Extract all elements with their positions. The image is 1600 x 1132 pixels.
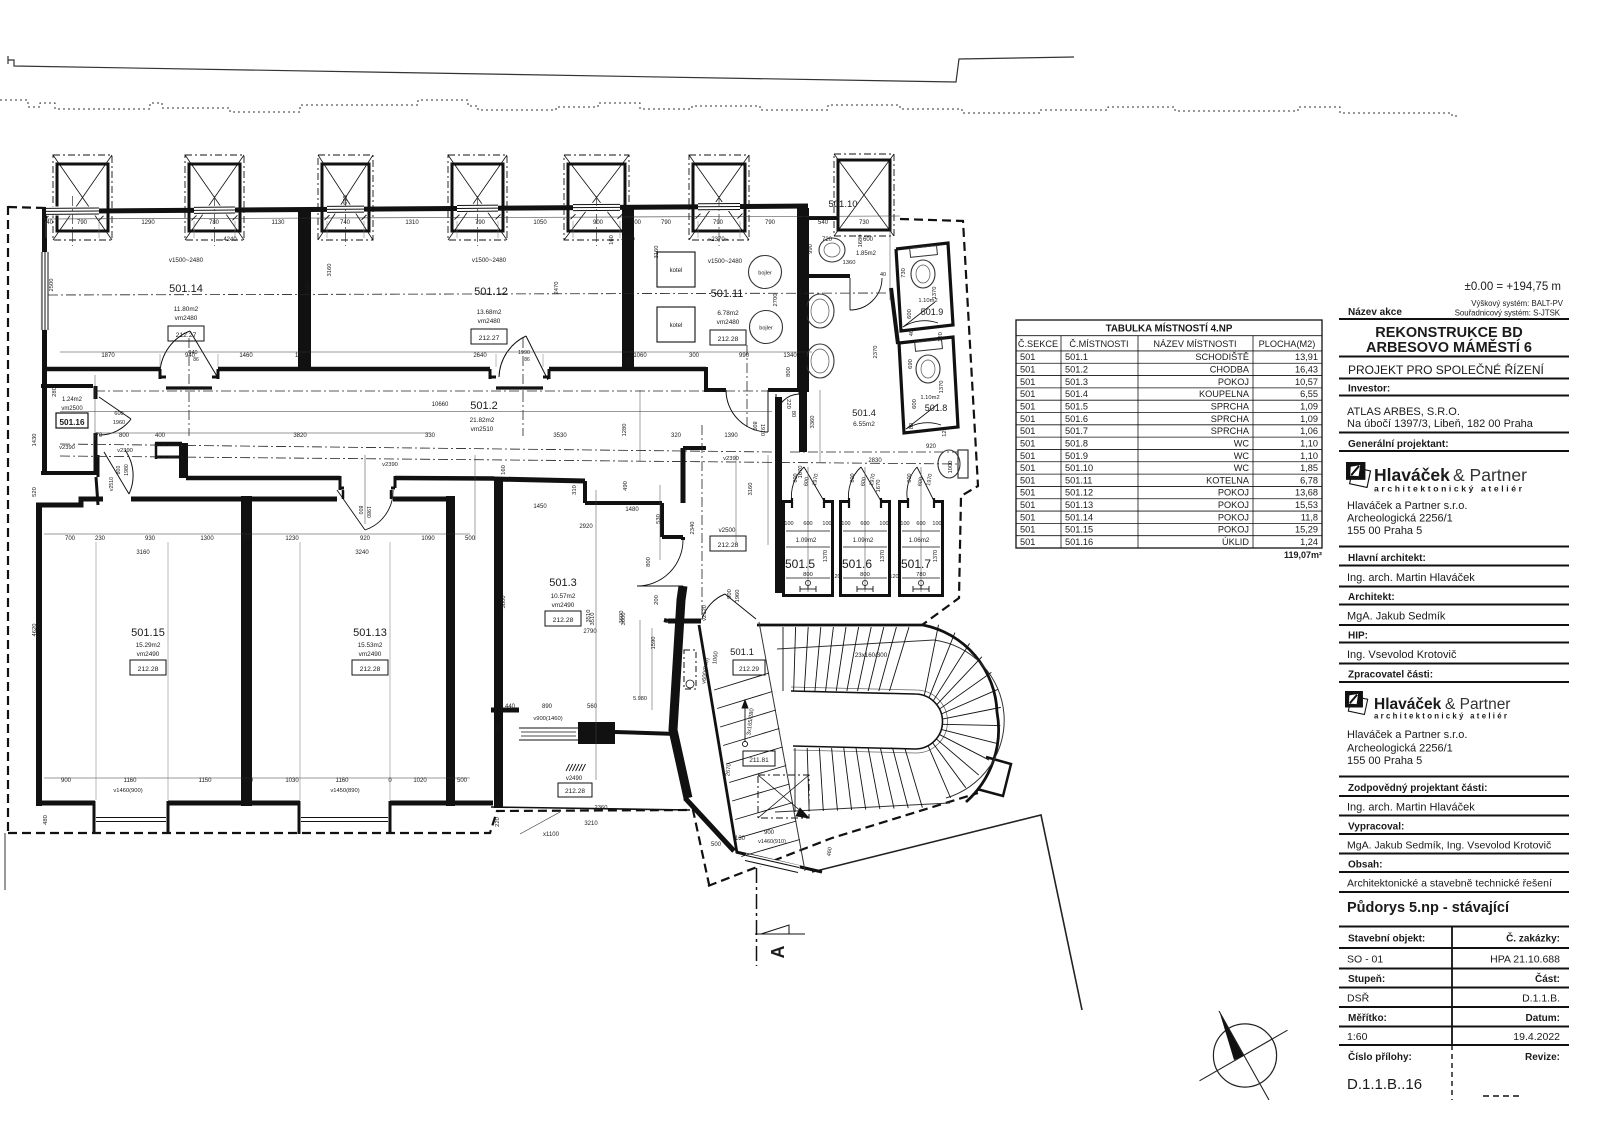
svg-text:Zodpovědný projektant části:: Zodpovědný projektant části: [1348,783,1487,794]
svg-text:ARBESOVO MÁMĚSTÍ 6: ARBESOVO MÁMĚSTÍ 6 [1366,338,1532,356]
svg-text:1670: 1670 [876,480,882,493]
svg-text:KOUPELNA: KOUPELNA [1199,389,1250,399]
svg-text:501.9: 501.9 [1065,451,1088,461]
svg-text:1280: 1280 [622,424,628,437]
svg-text:23x160/300: 23x160/300 [855,652,888,659]
svg-text:200: 200 [654,595,660,605]
svg-text:900: 900 [61,778,72,784]
svg-text:1000: 1000 [948,461,954,474]
svg-text:212.28: 212.28 [565,788,585,795]
svg-text:2360: 2360 [595,805,608,811]
svg-text:NÁZEV MÍSTNOSTI: NÁZEV MÍSTNOSTI [1153,339,1236,349]
svg-text:501.13: 501.13 [353,627,387,639]
svg-text:501.10: 501.10 [828,199,857,210]
svg-text:Vypracoval:: Vypracoval: [1348,822,1404,833]
svg-text:120: 120 [889,574,898,580]
svg-text:800: 800 [907,473,913,482]
svg-text:155 00 Praha 5: 155 00 Praha 5 [1347,755,1422,767]
svg-text:WC: WC [1234,451,1250,461]
svg-text:100: 100 [784,521,793,527]
svg-text:11,8: 11,8 [1301,512,1318,522]
svg-text:501.4: 501.4 [1065,389,1088,399]
svg-text:1020: 1020 [413,778,427,784]
svg-text:1960: 1960 [735,590,741,603]
svg-text:v2490: v2490 [566,776,583,782]
svg-text:kotel: kotel [670,268,683,274]
svg-text:2700: 2700 [773,294,779,307]
svg-text:780: 780 [495,724,501,734]
svg-text:600: 600 [860,521,869,527]
svg-text:Hlaváček a Partner s.r.o.: Hlaváček a Partner s.r.o. [1347,500,1467,512]
svg-text:40: 40 [909,330,915,336]
svg-text:501: 501 [1020,463,1035,473]
svg-text:1290: 1290 [141,220,155,226]
svg-text:Č.SEKCE: Č.SEKCE [1018,339,1058,349]
svg-text:500: 500 [457,778,468,784]
svg-text:501: 501 [1020,488,1035,498]
svg-text:501.10: 501.10 [1065,463,1093,473]
svg-text:v1460(910): v1460(910) [758,839,786,845]
svg-text:1370: 1370 [933,550,939,562]
svg-text:212.28: 212.28 [360,666,381,673]
svg-text:v2500: v2500 [719,527,736,534]
svg-text:& Partner: & Partner [1453,465,1527,485]
svg-text:architektonický ateliér: architektonický ateliér [1374,712,1509,721]
svg-text:80: 80 [909,423,915,429]
svg-text:120: 120 [942,427,948,437]
svg-text:1370: 1370 [880,550,886,562]
svg-text:1230: 1230 [285,536,299,542]
svg-text:2500: 2500 [49,279,55,292]
svg-text:3160: 3160 [748,483,754,496]
svg-text:100: 100 [932,521,941,527]
svg-text:11.80m2: 11.80m2 [174,306,199,313]
svg-text:1910: 1910 [759,424,765,436]
svg-text:940: 940 [185,353,196,359]
svg-text:3600: 3600 [619,611,625,624]
svg-text:Archeologická 2256/1: Archeologická 2256/1 [1347,743,1453,755]
svg-text:1980: 1980 [365,506,371,518]
svg-text:6.78m2: 6.78m2 [717,310,739,317]
svg-text:1,09: 1,09 [1300,401,1318,411]
svg-text:vm2480: vm2480 [175,315,198,322]
svg-text:v900(1460): v900(1460) [533,716,562,722]
svg-text:1370: 1370 [939,381,945,394]
svg-text:501: 501 [1020,525,1035,535]
svg-text:vm2500: vm2500 [61,406,83,412]
svg-text:vm2490: vm2490 [359,651,382,658]
svg-text:890: 890 [542,704,553,710]
svg-text:vm2510: vm2510 [471,426,494,433]
svg-text:4620: 4620 [32,624,38,637]
svg-text:WC: WC [1234,438,1250,448]
svg-text:DSŘ: DSŘ [1347,992,1370,1005]
svg-text:6,78: 6,78 [1300,475,1318,485]
svg-text:Výškový systém: BALT-PV: Výškový systém: BALT-PV [1471,299,1564,308]
svg-text:REKONSTRUKCE BD: REKONSTRUKCE BD [1375,325,1522,341]
svg-text:501: 501 [1020,500,1035,510]
svg-text:220: 220 [626,355,632,365]
svg-text:15,29: 15,29 [1295,525,1318,535]
svg-text:1,85: 1,85 [1300,463,1318,473]
svg-text:501: 501 [1020,512,1035,522]
svg-text:v2120: v2120 [702,605,708,621]
svg-text:1340: 1340 [783,353,797,359]
svg-text:3510: 3510 [586,610,592,623]
svg-text:13.68m2: 13.68m2 [477,309,502,316]
svg-text:1390: 1390 [724,433,738,439]
svg-text:800: 800 [803,572,813,578]
svg-text:1430: 1430 [32,434,38,447]
svg-text:600: 600 [912,399,918,409]
svg-text:86: 86 [524,357,530,363]
svg-text:PROJEKT PRO SPOLEČNÉ ŘÍZENÍ: PROJEKT PRO SPOLEČNÉ ŘÍZENÍ [1348,362,1544,377]
svg-text:v2390: v2390 [723,456,739,462]
svg-text:bojler: bojler [759,326,773,332]
svg-text:501.13: 501.13 [1065,500,1093,510]
svg-text:Č.MÍSTNOSTI: Č.MÍSTNOSTI [1069,339,1128,349]
svg-text:Název akce: Název akce [1348,307,1402,318]
svg-text:501.2: 501.2 [1065,365,1088,375]
svg-text:700: 700 [65,536,76,542]
svg-text:1,09: 1,09 [1300,414,1318,424]
svg-text:360: 360 [495,797,501,807]
svg-text:600: 600 [907,309,913,319]
svg-text:4780: 4780 [621,237,635,243]
svg-text:15,53: 15,53 [1295,500,1318,510]
svg-text:SPRCHA: SPRCHA [1211,401,1250,411]
svg-text:Architektonické a stavebně tec: Architektonické a stavebně technické řeš… [1347,878,1552,890]
svg-text:SPRCHA: SPRCHA [1211,426,1250,436]
svg-text:501.1: 501.1 [1065,352,1088,362]
svg-text:1060: 1060 [633,353,647,359]
svg-text:KOTELNA: KOTELNA [1206,475,1250,485]
svg-text:130: 130 [735,836,746,842]
svg-text:WC: WC [1234,463,1250,473]
svg-text:501.12: 501.12 [474,286,508,298]
svg-text:19.4.2022: 19.4.2022 [1513,1031,1560,1043]
svg-text:3360: 3360 [810,416,816,429]
svg-text:POKOJ: POKOJ [1218,488,1249,498]
svg-text:800: 800 [850,473,856,482]
svg-text:1:60: 1:60 [1347,1031,1368,1043]
svg-text:10,57: 10,57 [1295,377,1318,387]
svg-text:501: 501 [1020,438,1035,448]
svg-text:1,10: 1,10 [1300,438,1318,448]
svg-text:bojler: bojler [758,271,772,277]
svg-text:POKOJ: POKOJ [1218,525,1249,535]
svg-text:HIP:: HIP: [1348,631,1368,642]
svg-text:212.27: 212.27 [176,332,197,339]
svg-text:501.7: 501.7 [1065,426,1088,436]
svg-text:155 00 Praha 5: 155 00 Praha 5 [1347,525,1422,537]
svg-text:& Partner: & Partner [1445,696,1510,713]
svg-text:120: 120 [831,574,840,580]
svg-text:1680: 1680 [858,235,864,248]
svg-text:v2390: v2390 [382,462,398,468]
svg-text:1.24m2: 1.24m2 [62,397,83,403]
svg-text:2490: 2490 [305,282,311,295]
svg-text:280: 280 [52,387,58,397]
svg-text:212.29: 212.29 [739,666,759,673]
svg-text:1480: 1480 [625,507,639,513]
svg-text:501.2: 501.2 [470,400,498,412]
svg-text:1130: 1130 [272,220,286,226]
svg-text:1160: 1160 [336,778,350,784]
svg-text:501.14: 501.14 [1065,512,1093,522]
svg-text:119,07m²: 119,07m² [1284,550,1322,560]
svg-text:1300: 1300 [200,536,214,542]
svg-text:1870: 1870 [101,353,115,359]
svg-text:501.8: 501.8 [925,403,948,413]
svg-text:1980: 1980 [124,464,130,476]
svg-text:1370: 1370 [823,550,829,562]
svg-text:D.1.1.B..16: D.1.1.B..16 [1347,1076,1422,1093]
svg-text:800: 800 [860,572,870,578]
svg-text:10.57m2: 10.57m2 [551,593,576,600]
svg-text:690: 690 [343,195,349,205]
svg-text:501: 501 [1020,389,1035,399]
svg-text:800: 800 [751,421,757,430]
svg-text:501: 501 [1020,377,1035,387]
svg-text:1090: 1090 [421,536,435,542]
svg-text:730: 730 [901,268,907,278]
svg-text:v2390: v2390 [59,445,75,451]
svg-text:790: 790 [765,220,776,226]
svg-text:900: 900 [727,589,733,599]
svg-text:Architekt:: Architekt: [1348,592,1395,603]
svg-text:3820: 3820 [293,433,307,439]
svg-text:v1450(890): v1450(890) [330,788,359,794]
svg-text:501.1: 501.1 [730,647,754,658]
svg-text:SPRCHA: SPRCHA [1211,414,1250,424]
svg-text:440: 440 [505,704,516,710]
svg-text:600: 600 [803,521,812,527]
svg-text:501.15: 501.15 [1065,525,1093,535]
svg-text:D.1.1.B.: D.1.1.B. [1522,993,1560,1005]
svg-text:501.16: 501.16 [1065,537,1093,547]
svg-text:SCHODIŠTĚ: SCHODIŠTĚ [1195,352,1249,362]
svg-text:501.7: 501.7 [901,557,931,571]
svg-text:~2370~: ~2370~ [708,237,729,243]
svg-text:900: 900 [593,220,604,226]
svg-text:240: 240 [43,220,54,226]
svg-text:600: 600 [114,411,123,417]
svg-text:520: 520 [32,487,38,497]
svg-text:330: 330 [425,433,436,439]
svg-text:800: 800 [646,557,652,567]
svg-text:501.14: 501.14 [169,283,203,295]
svg-text:Investor:: Investor: [1348,384,1390,395]
svg-text:920: 920 [926,444,937,450]
svg-text:1160: 1160 [124,778,138,784]
svg-text:790: 790 [713,220,724,226]
svg-text:990: 990 [739,353,750,359]
svg-text:v1500~2480: v1500~2480 [472,257,507,264]
svg-text:100: 100 [841,521,850,527]
svg-text:Stavební objekt:: Stavební objekt: [1348,934,1425,945]
svg-text:13,68: 13,68 [1295,488,1318,498]
svg-text:280: 280 [241,536,252,542]
svg-text:501: 501 [1020,537,1035,547]
svg-text:600: 600 [863,237,874,243]
svg-text:690: 690 [908,359,914,369]
svg-text:Stupeň:: Stupeň: [1348,974,1385,985]
svg-text:501: 501 [1020,426,1035,436]
svg-text:920: 920 [360,536,371,542]
svg-text:100: 100 [900,521,909,527]
svg-text:501: 501 [1020,365,1035,375]
svg-text:Na úbočí 1397/3, Libeň, 182 00: Na úbočí 1397/3, Libeň, 182 00 Praha [1347,418,1534,430]
svg-text:POKOJ: POKOJ [1218,377,1249,387]
svg-text:480: 480 [43,815,49,825]
svg-text:501.3: 501.3 [549,577,577,589]
svg-text:Zpracovatel části:: Zpracovatel části: [1348,670,1433,681]
svg-text:1310: 1310 [405,220,419,226]
svg-text:212.28: 212.28 [138,666,159,673]
svg-text:220: 220 [785,399,791,409]
svg-text:180: 180 [295,353,306,359]
svg-text:3160: 3160 [136,550,150,556]
svg-text:Půdorys 5.np - stávající: Půdorys 5.np - stávající [1347,900,1510,916]
svg-text:501: 501 [1020,352,1035,362]
svg-text:212.28: 212.28 [718,336,739,343]
svg-text:212.27: 212.27 [479,335,500,342]
svg-text:PLOCHA(M2): PLOCHA(M2) [1259,339,1316,349]
svg-text:SO - 01: SO - 01 [1347,954,1383,966]
svg-text:1960: 1960 [113,420,125,426]
svg-text:Číslo přílohy:: Číslo přílohy: [1348,1050,1412,1063]
svg-text:Ing. Vsevolod Krotovič: Ing. Vsevolod Krotovič [1347,649,1457,661]
svg-text:Měřítko:: Měřítko: [1348,1013,1387,1024]
svg-text:v2390: v2390 [117,448,133,454]
svg-text:501.16: 501.16 [59,418,84,427]
svg-text:vm2480: vm2480 [717,319,740,326]
svg-text:Hlaváček: Hlaváček [1374,696,1442,713]
svg-text:320: 320 [671,433,682,439]
svg-text:10660: 10660 [432,402,449,408]
svg-text:530: 530 [656,514,662,524]
svg-text:13,91: 13,91 [1295,352,1318,362]
svg-text:1990: 1990 [518,350,530,356]
svg-text:architektonický ateliér: architektonický ateliér [1374,484,1525,494]
svg-text:v1460(900): v1460(900) [113,788,142,794]
svg-text:2790: 2790 [583,629,597,635]
svg-text:Hlaváček: Hlaváček [1374,465,1450,485]
svg-text:160: 160 [609,235,615,245]
svg-text:1,24: 1,24 [1300,537,1318,547]
svg-text:501.15: 501.15 [131,627,165,639]
svg-text:501.6: 501.6 [842,557,872,571]
svg-text:6.55m2: 6.55m2 [853,421,875,428]
svg-text:230: 230 [95,536,106,542]
svg-text:212.28: 212.28 [553,617,574,624]
svg-text:490: 490 [623,481,629,491]
svg-text:CHODBA: CHODBA [1210,365,1250,375]
svg-text:MgA. Jakub Sedmík, Ing. Vsevol: MgA. Jakub Sedmík, Ing. Vsevolod Krotovi… [1347,840,1551,852]
svg-text:730: 730 [859,220,870,226]
svg-text:v1500~2480: v1500~2480 [169,257,204,264]
svg-text:Obsah:: Obsah: [1348,860,1382,871]
svg-text:3160: 3160 [654,246,660,259]
svg-text:1,06: 1,06 [1300,426,1318,436]
svg-text:1,10: 1,10 [1300,451,1318,461]
svg-text:1.85m2: 1.85m2 [856,251,877,257]
svg-text:Archeologická 2256/1: Archeologická 2256/1 [1347,513,1453,525]
svg-text:80: 80 [790,411,796,417]
svg-text:2340: 2340 [690,522,696,535]
svg-text:501: 501 [1020,401,1035,411]
svg-text:15.53m2: 15.53m2 [358,642,383,649]
svg-text:Část:: Část: [1535,972,1560,985]
svg-text:790: 790 [77,220,88,226]
svg-text:Hlaváček a Partner s.r.o.: Hlaváček a Partner s.r.o. [1347,729,1467,741]
svg-text:3160: 3160 [327,264,333,277]
svg-text:100: 100 [822,521,831,527]
svg-text:ATLAS ARBES, S.R.O.: ATLAS ARBES, S.R.O. [1347,406,1460,418]
svg-text:500: 500 [465,536,476,542]
svg-text:Ing. arch. Martin Hlaváček: Ing. arch. Martin Hlaváček [1347,802,1475,814]
svg-text:POKOJ: POKOJ [1218,512,1249,522]
svg-text:501.6: 501.6 [1065,414,1088,424]
svg-text:6,55: 6,55 [1300,389,1318,399]
svg-text:501.4: 501.4 [852,408,876,419]
svg-text:3210: 3210 [584,821,598,827]
svg-text:Souřadnicový systém: S-JTSK: Souřadnicový systém: S-JTSK [1455,309,1561,318]
svg-text:501.12: 501.12 [1065,488,1093,498]
svg-text:40: 40 [880,272,886,278]
svg-text:270: 270 [243,778,254,784]
svg-text:160: 160 [501,465,507,475]
svg-text:2830: 2830 [868,458,882,464]
svg-text:800: 800 [116,466,122,475]
svg-text:1450: 1450 [533,504,547,510]
svg-text:990: 990 [808,244,814,254]
svg-text:100: 100 [879,521,888,527]
svg-text:800: 800 [786,367,792,377]
svg-text:MgA. Jakub Sedmík: MgA. Jakub Sedmík [1347,611,1446,623]
svg-text:120: 120 [938,332,944,342]
svg-text:501.11: 501.11 [711,288,744,300]
svg-text:Revize:: Revize: [1525,1052,1560,1063]
svg-text:2640: 2640 [473,353,487,359]
svg-text:2470: 2470 [554,282,560,295]
svg-text:1460: 1460 [239,353,253,359]
svg-text:212.28: 212.28 [718,542,739,549]
svg-text:v1500~2480: v1500~2480 [708,258,743,265]
svg-text:930: 930 [145,536,156,542]
svg-text:15.29m2: 15.29m2 [136,642,161,649]
svg-text:3800: 3800 [501,596,507,609]
svg-text:A: A [768,946,788,959]
svg-text:501.11: 501.11 [1065,475,1092,485]
svg-text:Hlavní architekt:: Hlavní architekt: [1348,553,1426,564]
svg-text:310: 310 [572,485,578,495]
svg-text:1670: 1670 [798,466,804,479]
svg-text:720: 720 [822,237,833,243]
svg-text:vm2490: vm2490 [552,602,575,609]
svg-text:300: 300 [689,353,700,359]
svg-text:400: 400 [155,433,166,439]
svg-text:600: 600 [916,521,925,527]
svg-text:501: 501 [1020,414,1035,424]
svg-text:800: 800 [357,506,363,515]
svg-text:HPA 21.10.688: HPA 21.10.688 [1490,954,1560,966]
svg-text:501.5: 501.5 [1065,401,1088,411]
svg-text:800: 800 [119,433,130,439]
svg-text:1370: 1370 [932,287,938,300]
svg-text:500: 500 [711,842,722,848]
